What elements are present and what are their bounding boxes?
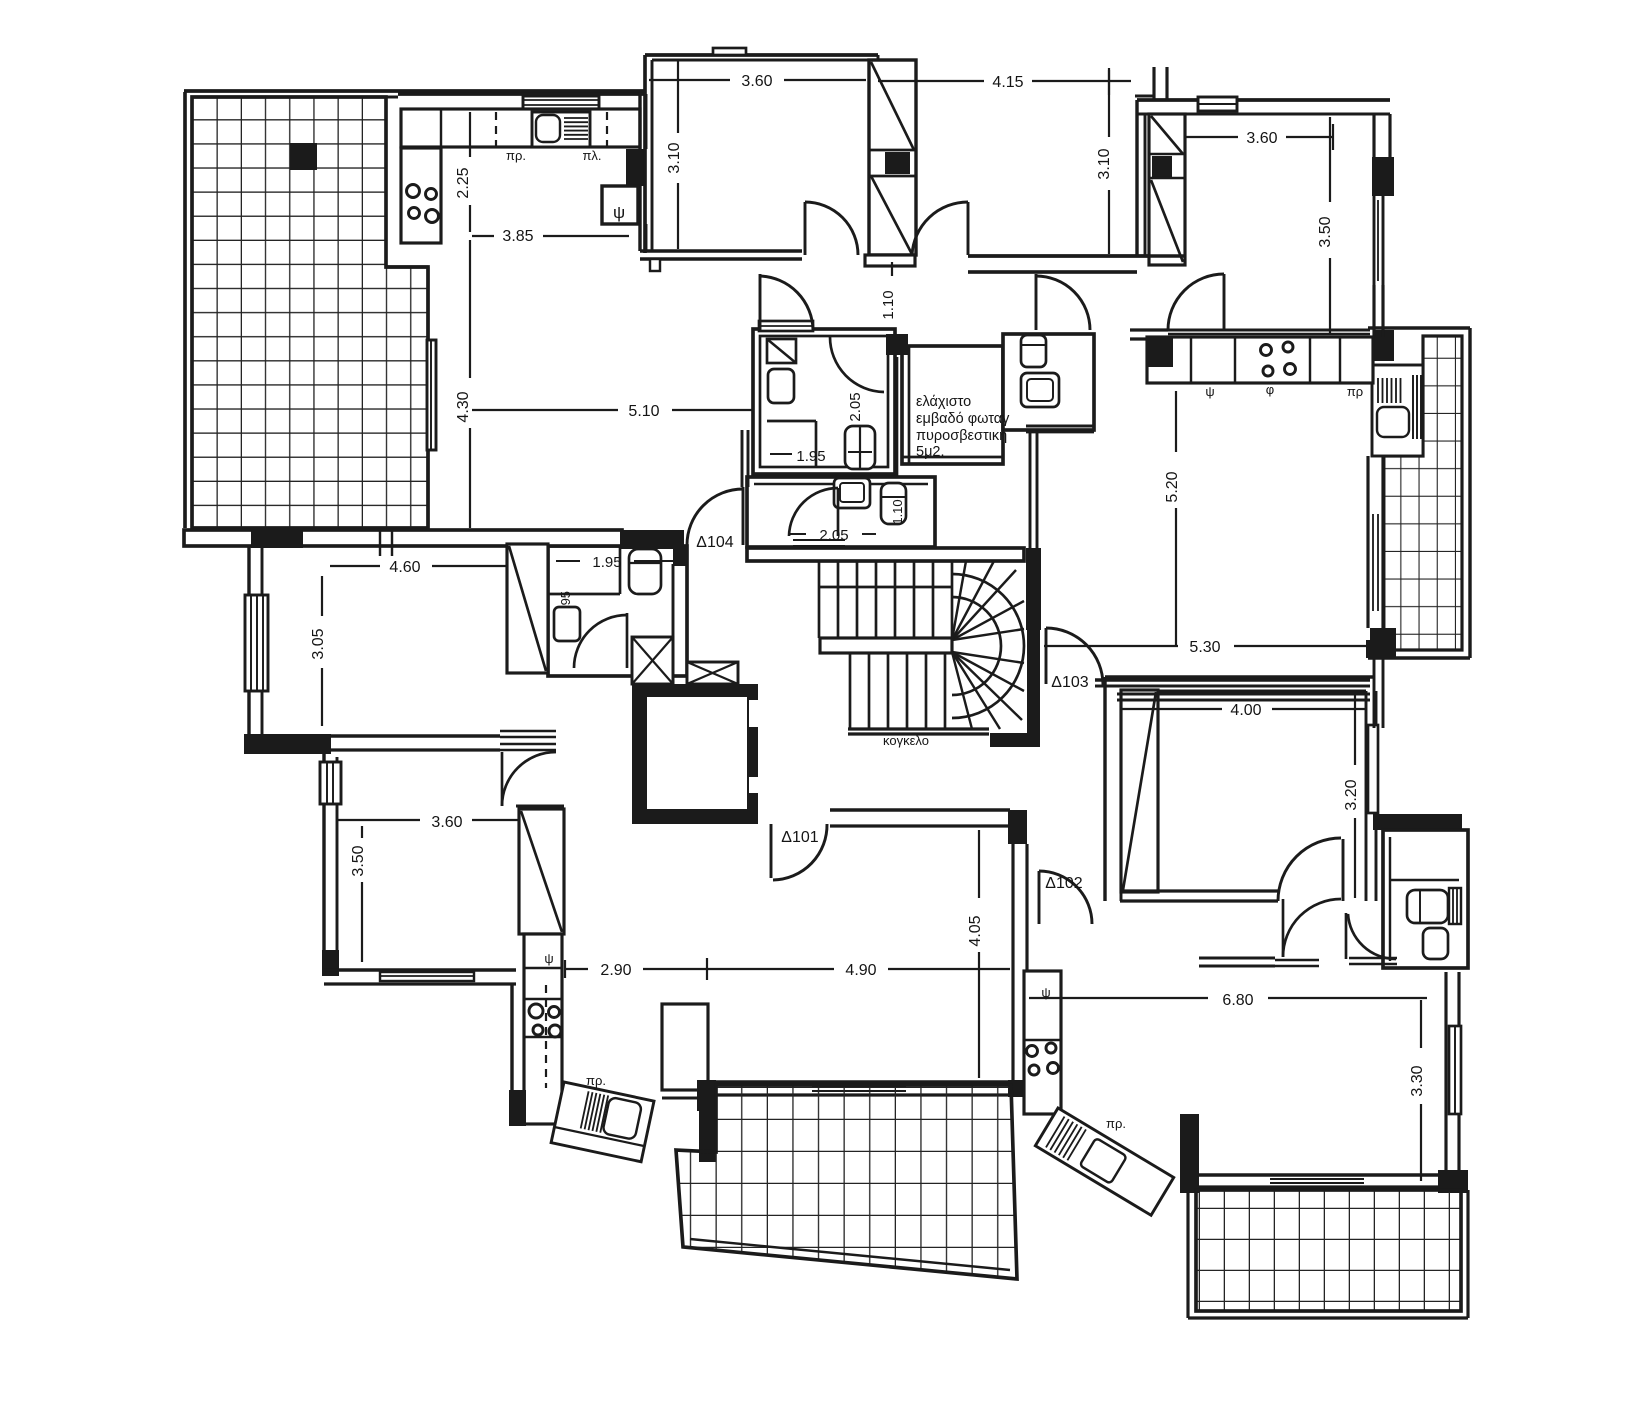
- svg-text:3.60: 3.60: [431, 814, 462, 831]
- svg-text:πυροσβεστική: πυροσβεστική: [916, 428, 1007, 444]
- svg-text:Δ103: Δ103: [1051, 674, 1088, 691]
- svg-text:.95: .95: [558, 591, 573, 609]
- svg-text:3.10: 3.10: [1096, 148, 1113, 179]
- svg-text:4.05: 4.05: [967, 915, 984, 946]
- svg-text:3.30: 3.30: [1409, 1065, 1426, 1096]
- svg-text:3.10: 3.10: [666, 142, 683, 173]
- svg-text:Δ101: Δ101: [781, 829, 818, 846]
- svg-text:1.95: 1.95: [796, 448, 825, 465]
- svg-text:εμβαδό φωταγ: εμβαδό φωταγ: [916, 411, 1010, 427]
- svg-text:πρ.: πρ.: [586, 1073, 606, 1088]
- svg-text:2.05: 2.05: [847, 392, 864, 421]
- svg-text:3.60: 3.60: [1246, 130, 1277, 147]
- svg-text:5.30: 5.30: [1189, 639, 1220, 656]
- svg-text:πλ.: πλ.: [582, 148, 601, 163]
- svg-text:3.20: 3.20: [1343, 779, 1360, 810]
- svg-text:3.50: 3.50: [350, 845, 367, 876]
- svg-text:3.50: 3.50: [1317, 216, 1334, 247]
- svg-text:ψ: ψ: [1205, 384, 1214, 399]
- svg-text:6.80: 6.80: [1222, 992, 1253, 1009]
- svg-text:3.60: 3.60: [741, 73, 772, 90]
- svg-text:2.25: 2.25: [455, 167, 472, 198]
- svg-text:πρ.: πρ.: [1106, 1116, 1126, 1131]
- svg-text:2.05: 2.05: [819, 527, 848, 544]
- svg-text:ελάχιστο: ελάχιστο: [916, 394, 971, 410]
- svg-text:φ: φ: [1266, 382, 1274, 397]
- svg-text:2.90: 2.90: [600, 962, 631, 979]
- svg-text:1.10: 1.10: [880, 290, 897, 319]
- svg-text:3.05: 3.05: [310, 628, 327, 659]
- svg-text:κογκελο: κογκελο: [883, 733, 929, 748]
- svg-text:5μ2.: 5μ2.: [916, 444, 945, 460]
- svg-text:4.60: 4.60: [389, 559, 420, 576]
- svg-text:4.15: 4.15: [992, 74, 1023, 91]
- svg-text:1.10: 1.10: [890, 499, 905, 524]
- svg-text:5.10: 5.10: [628, 403, 659, 420]
- svg-text:πρ.: πρ.: [506, 148, 526, 163]
- svg-text:ψ: ψ: [613, 203, 625, 222]
- svg-text:Δ104: Δ104: [696, 534, 733, 551]
- svg-text:4.90: 4.90: [845, 962, 876, 979]
- svg-text:Δ102: Δ102: [1045, 875, 1082, 892]
- svg-text:3.85: 3.85: [502, 228, 533, 245]
- svg-text:1.95: 1.95: [592, 554, 621, 571]
- svg-text:ψ: ψ: [544, 951, 553, 966]
- svg-text:πρ: πρ: [1347, 384, 1363, 399]
- svg-text:4.00: 4.00: [1230, 702, 1261, 719]
- svg-text:5.20: 5.20: [1164, 471, 1181, 502]
- svg-text:4.30: 4.30: [455, 391, 472, 422]
